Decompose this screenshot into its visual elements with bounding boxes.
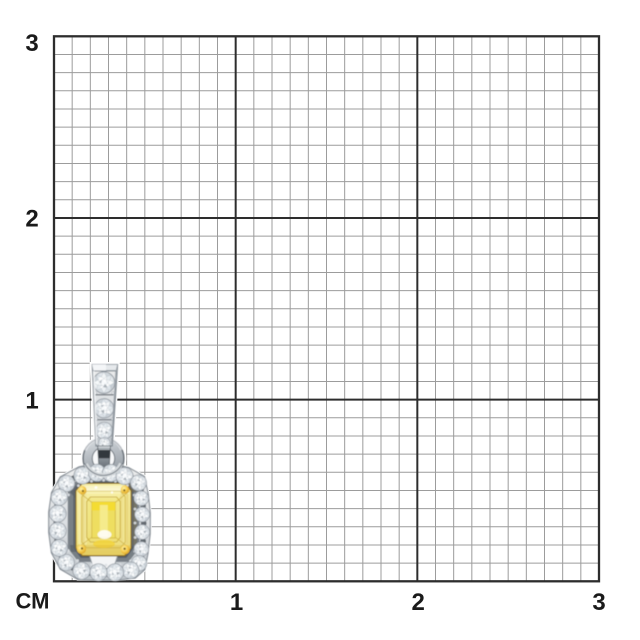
svg-text:3: 3 (25, 30, 38, 57)
svg-text:1: 1 (230, 589, 243, 616)
svg-text:1: 1 (25, 387, 38, 414)
svg-text:2: 2 (412, 589, 425, 616)
svg-text:СМ: СМ (16, 589, 50, 614)
svg-text:3: 3 (592, 589, 605, 616)
svg-text:2: 2 (25, 206, 38, 233)
